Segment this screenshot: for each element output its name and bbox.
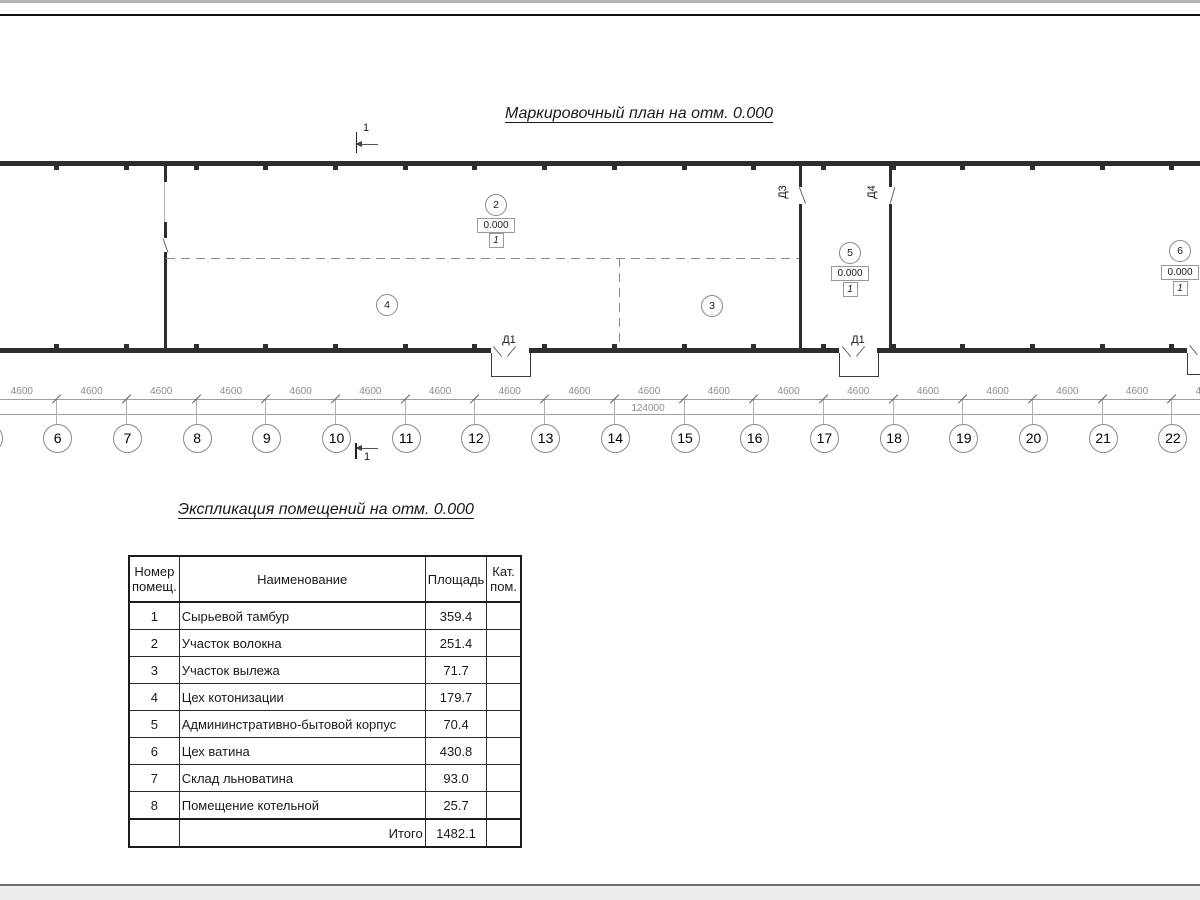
table-total-row: Итого1482.1: [129, 819, 521, 847]
header-name: Наименование: [179, 556, 425, 602]
floor-type-box: 1: [489, 233, 504, 248]
door-opening: [839, 353, 879, 377]
bottom-wall-segment: [877, 348, 1187, 353]
column-tick-top: [542, 166, 547, 170]
door-frame-line: [164, 182, 165, 222]
bay-dimension-label: 4600: [348, 386, 392, 397]
dashed-zone-line-h: [166, 258, 799, 259]
column-tick-bottom: [472, 344, 477, 348]
axis-extension-line: [684, 399, 685, 424]
room-schedule-table: Номер помещ. Наименование Площадь Кат. п…: [128, 555, 522, 848]
bay-dimension-label: 4600: [697, 386, 741, 397]
bay-dimension-label: 4600: [139, 386, 183, 397]
table-row: 2Участок волокна251.4: [129, 630, 521, 657]
door-leaf: [890, 187, 896, 204]
column-tick-bottom: [821, 344, 826, 348]
column-tick-bottom: [612, 344, 617, 348]
section-mark-bottom-line: [362, 448, 378, 449]
bay-dimension-label: 4600: [976, 386, 1020, 397]
floor-type-box: 1: [1173, 281, 1188, 296]
column-tick-top: [960, 166, 965, 170]
table-row: 1Сырьевой тамбур359.4: [129, 602, 521, 630]
sheet-bottom-band: [0, 886, 1200, 900]
door-label-d1: Д1: [497, 334, 521, 346]
top-wall: [0, 161, 1200, 166]
table-row: 8Помещение котельной25.7: [129, 792, 521, 820]
column-tick-top: [1169, 166, 1174, 170]
cell-room-number: 3: [129, 657, 179, 684]
axis-extension-line: [962, 399, 963, 424]
cell-room-area: 70.4: [425, 711, 487, 738]
axis-extension-line: [544, 399, 545, 424]
axis-bubble: 16: [740, 424, 769, 453]
dashed-zone-line-v: [619, 258, 620, 348]
axis-bubble: 6: [43, 424, 72, 453]
cell-room-category: [487, 630, 521, 657]
column-tick-top: [333, 166, 338, 170]
plan-title: Маркировочный план на отм. 0.000: [505, 105, 773, 123]
cell-room-area: 71.7: [425, 657, 487, 684]
axis-extension-line: [614, 399, 615, 424]
room-number-circle: 3: [701, 295, 723, 317]
column-tick-bottom: [403, 344, 408, 348]
axis-bubble: 13: [531, 424, 560, 453]
interior-wall-a-stub: [164, 222, 167, 239]
door-label-d4: Д4: [866, 180, 878, 204]
interior-wall-b: [799, 204, 802, 353]
cell-room-category: [487, 602, 521, 630]
cell-room-category: [487, 711, 521, 738]
interior-wall-c: [889, 204, 892, 353]
table-row: 6Цех ватина430.8: [129, 738, 521, 765]
bay-dimension-label: 4600: [1115, 386, 1159, 397]
cell-room-name: Склад льноватина: [179, 765, 425, 792]
cell-room-category: [487, 657, 521, 684]
bay-dimension-label: 4600: [1185, 386, 1200, 397]
table-row: 4Цех котонизации179.7: [129, 684, 521, 711]
axis-extension-line: [405, 399, 406, 424]
door-opening: [491, 353, 531, 377]
bay-dimension-label: 4600: [906, 386, 950, 397]
axis-bubble: 19: [949, 424, 978, 453]
axis-bubble: 7: [113, 424, 142, 453]
cell-room-number: 7: [129, 765, 179, 792]
bay-dimension-label: 4600: [0, 386, 44, 397]
column-tick-top: [194, 166, 199, 170]
door-opening: [1187, 353, 1200, 375]
axis-extension-line: [56, 399, 57, 424]
section-mark-bottom-label: 1: [364, 451, 370, 463]
column-tick-bottom: [1169, 344, 1174, 348]
column-tick-bottom: [1100, 344, 1105, 348]
axis-extension-line: [265, 399, 266, 424]
axis-bubble: [0, 424, 3, 453]
bottom-wall-segment: [0, 348, 491, 353]
cell-room-name: Цех котонизации: [179, 684, 425, 711]
cell-room-category: [487, 792, 521, 820]
bay-dimension-label: 4600: [209, 386, 253, 397]
interior-wall-b: [799, 162, 802, 187]
column-tick-bottom: [194, 344, 199, 348]
sheet-top-band: [0, 0, 1200, 3]
bottom-wall-segment: [529, 348, 840, 353]
axis-extension-line: [126, 399, 127, 424]
cell-empty: [487, 819, 521, 847]
elevation-box: 0.000: [1161, 265, 1199, 280]
cell-room-number: 4: [129, 684, 179, 711]
drawing-sheet: Маркировочный план на отм. 0.000 1 1 Д3 …: [0, 0, 1200, 900]
axis-bubble: 11: [392, 424, 421, 453]
bay-dimension-label: 4600: [767, 386, 811, 397]
cell-total-area: 1482.1: [425, 819, 487, 847]
axis-extension-line: [1032, 399, 1033, 424]
sheet-top-border: [0, 14, 1200, 16]
elevation-box: 0.000: [477, 218, 515, 233]
column-tick-top: [891, 166, 896, 170]
bay-dimension-label: 4600: [627, 386, 671, 397]
cell-room-category: [487, 765, 521, 792]
header-category: Кат. пом.: [487, 556, 521, 602]
cell-room-area: 430.8: [425, 738, 487, 765]
cell-room-area: 93.0: [425, 765, 487, 792]
cell-room-category: [487, 738, 521, 765]
cell-room-name: Помещение котельной: [179, 792, 425, 820]
cell-room-number: 2: [129, 630, 179, 657]
header-area: Площадь: [425, 556, 487, 602]
interior-wall-a: [164, 252, 167, 348]
cell-room-area: 25.7: [425, 792, 487, 820]
room-number-circle: 6: [1169, 240, 1191, 262]
dimension-line-total: [0, 414, 1200, 415]
bay-dimension-label: 4600: [488, 386, 532, 397]
cell-total-label: Итого: [179, 819, 425, 847]
cell-room-category: [487, 684, 521, 711]
column-tick-bottom: [682, 344, 687, 348]
cell-room-name: Участок волокна: [179, 630, 425, 657]
bay-dimension-label: 4600: [557, 386, 601, 397]
total-dimension-label: 124000: [608, 403, 688, 414]
axis-extension-line: [823, 399, 824, 424]
floor-type-box: 1: [843, 282, 858, 297]
column-tick-bottom: [891, 344, 896, 348]
cell-room-area: 359.4: [425, 602, 487, 630]
section-mark-top-line: [362, 144, 378, 145]
column-tick-bottom: [960, 344, 965, 348]
axis-extension-line: [893, 399, 894, 424]
column-tick-bottom: [542, 344, 547, 348]
table-title: Экспликация помещений на отм. 0.000: [178, 501, 474, 519]
column-tick-top: [54, 166, 59, 170]
door-label-d1: Д1: [846, 334, 870, 346]
column-tick-top: [472, 166, 477, 170]
column-tick-top: [124, 166, 129, 170]
axis-bubble: 22: [1158, 424, 1187, 453]
cell-room-name: Сырьевой тамбур: [179, 602, 425, 630]
table-row: 7Склад льноватина93.0: [129, 765, 521, 792]
elevation-box: 0.000: [831, 266, 869, 281]
column-tick-top: [821, 166, 826, 170]
column-tick-top: [682, 166, 687, 170]
door-leaf: [162, 238, 168, 253]
dimension-line-bays: [0, 399, 1200, 400]
cell-room-number: 1: [129, 602, 179, 630]
column-tick-bottom: [54, 344, 59, 348]
axis-bubble: 14: [601, 424, 630, 453]
axis-extension-line: [1102, 399, 1103, 424]
column-tick-bottom: [124, 344, 129, 348]
axis-bubble: 9: [252, 424, 281, 453]
column-tick-top: [263, 166, 268, 170]
axis-bubble: 12: [461, 424, 490, 453]
axis-bubble: 8: [183, 424, 212, 453]
column-tick-top: [403, 166, 408, 170]
header-number: Номер помещ.: [129, 556, 179, 602]
interior-wall-a: [164, 162, 167, 182]
column-tick-top: [751, 166, 756, 170]
axis-extension-line: [196, 399, 197, 424]
section-arrow-icon: [355, 141, 362, 147]
column-tick-bottom: [751, 344, 756, 348]
room-number-circle: 2: [485, 194, 507, 216]
table-header-row: Номер помещ. Наименование Площадь Кат. п…: [129, 556, 521, 602]
axis-bubble: 10: [322, 424, 351, 453]
axis-extension-line: [753, 399, 754, 424]
cell-room-name: Участок вылежа: [179, 657, 425, 684]
column-tick-top: [612, 166, 617, 170]
axis-extension-line: [1171, 399, 1172, 424]
cell-room-number: 6: [129, 738, 179, 765]
bay-dimension-label: 4600: [836, 386, 880, 397]
door-leaf: [799, 187, 806, 203]
column-tick-bottom: [263, 344, 268, 348]
table-row: 3Участок вылежа71.7: [129, 657, 521, 684]
room-number-circle: 4: [376, 294, 398, 316]
bay-dimension-label: 4600: [1045, 386, 1089, 397]
axis-bubble: 20: [1019, 424, 1048, 453]
axis-bubble: 21: [1089, 424, 1118, 453]
cell-room-number: 5: [129, 711, 179, 738]
cell-room-area: 179.7: [425, 684, 487, 711]
door-label-d3: Д3: [777, 180, 789, 204]
room-number-circle: 5: [839, 242, 861, 264]
bay-dimension-label: 4600: [70, 386, 114, 397]
column-tick-top: [1100, 166, 1105, 170]
axis-bubble: 18: [880, 424, 909, 453]
section-arrow-icon: [355, 445, 362, 451]
column-tick-bottom: [333, 344, 338, 348]
cell-room-number: 8: [129, 792, 179, 820]
axis-bubble: 15: [671, 424, 700, 453]
cell-empty: [129, 819, 179, 847]
cell-room-name: Админинстративно-бытовой корпус: [179, 711, 425, 738]
axis-extension-line: [474, 399, 475, 424]
column-tick-bottom: [1030, 344, 1035, 348]
cell-room-name: Цех ватина: [179, 738, 425, 765]
table-row: 5Админинстративно-бытовой корпус70.4: [129, 711, 521, 738]
section-mark-top-label: 1: [363, 122, 369, 134]
cell-room-area: 251.4: [425, 630, 487, 657]
axis-extension-line: [335, 399, 336, 424]
column-tick-top: [1030, 166, 1035, 170]
bay-dimension-label: 4600: [418, 386, 462, 397]
axis-bubble: 17: [810, 424, 839, 453]
bay-dimension-label: 4600: [279, 386, 323, 397]
